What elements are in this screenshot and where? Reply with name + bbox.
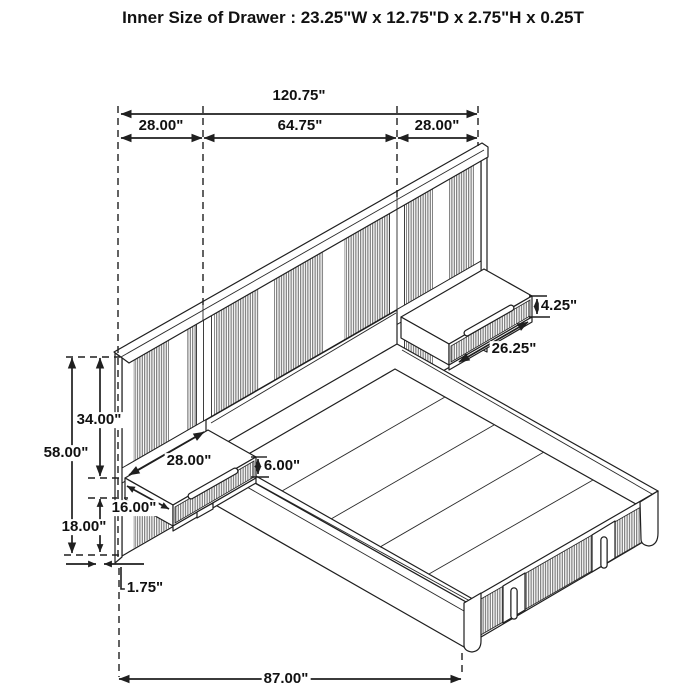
dim-label-center-section: 64.75": [276, 118, 325, 134]
dim-label-right-section: 28.00": [413, 118, 462, 134]
dim-label-shelf-width-right: 26.25": [490, 341, 539, 357]
dim-label-total-width: 120.75": [271, 88, 328, 104]
dim-label-total-height: 58.00": [42, 445, 91, 461]
dim-label-shelf-depth-left: 16.00": [110, 500, 159, 516]
dim-label-shelf-height-right: 4.25": [539, 298, 579, 314]
bed-isometric-drawing: [0, 0, 700, 700]
dim-label-shelf-width-left: 28.00": [165, 453, 214, 469]
dim-label-shelf-height-left: 6.00": [262, 458, 302, 474]
dim-label-panel-thickness: 1.75": [125, 580, 165, 596]
bed-corner-post-left: [464, 593, 481, 652]
dimension-diagram: Inner Size of Drawer : 23.25"W x 12.75"D…: [0, 0, 700, 700]
dim-label-lower-panel-height: 18.00": [60, 519, 109, 535]
dim-label-upper-panel-height: 34.00": [75, 412, 124, 428]
dim-label-left-section: 28.00": [137, 118, 186, 134]
drawing-title: Inner Size of Drawer : 23.25"W x 12.75"D…: [122, 8, 584, 28]
dim-label-bed-length: 87.00": [262, 671, 311, 687]
